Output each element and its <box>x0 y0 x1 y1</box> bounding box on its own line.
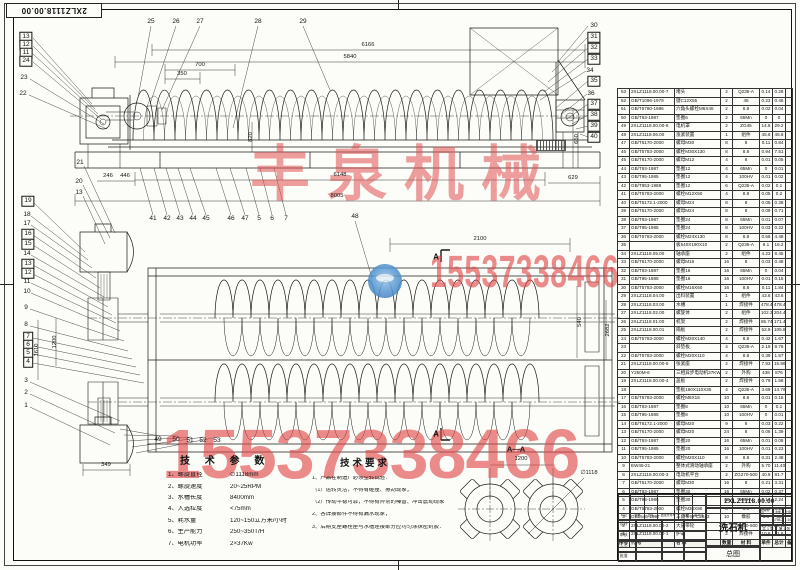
part-callout: 15 <box>21 239 34 250</box>
part-callout: 4 <box>23 357 33 368</box>
tech-param-row: 7、电机功率2×37Kw <box>160 541 335 547</box>
dimension-label: 2682 <box>606 324 612 337</box>
part-callout: 27 <box>195 19 204 26</box>
part-callout: 6 <box>269 216 275 223</box>
part-callout: 11 <box>23 279 32 286</box>
part-callout: 12 <box>21 268 34 279</box>
dimension-label: 246 <box>103 174 113 180</box>
bom-row: 292XLZ1118.04.00出料装置1组件43.643.6 <box>618 293 793 302</box>
part-callout: 44 <box>188 216 197 223</box>
sign-label: 工艺 <box>618 541 636 552</box>
part-callout: 47 <box>240 216 249 223</box>
bom-row: 20Y250M-6三相异步电动机37KW2外购438876 <box>618 369 793 378</box>
bom-row: 50GB/T93-1987垫圈6265Mn00 <box>618 114 793 123</box>
part-callout: 28 <box>253 19 262 26</box>
part-callout: 18 <box>22 212 31 219</box>
part-callout: 49 <box>153 437 162 444</box>
bom-row: 22GB/T5783-2000螺栓M20X11048.80.391.57 <box>618 352 793 361</box>
dimension-label: 8005 <box>331 194 344 200</box>
part-callout: 29 <box>298 19 307 26</box>
bom-row: 342XLZ1118.05.00轴承座2组件4.238.45 <box>618 250 793 259</box>
tech-param-row: 3、水槽长度8400mm <box>160 495 335 501</box>
bom-row: 15GB/T95-1985垫圈810100HV00.01 <box>618 412 793 421</box>
bom-row: 192XLZ1118.00.00-4盖板2焊接件0.791.58 <box>618 378 793 387</box>
part-callout: 5 <box>256 216 262 223</box>
part-callout: 13 <box>74 190 83 197</box>
bom-row: 44GB/T93-1987垫圈12465Mn00.01 <box>618 165 793 174</box>
weight-label: 重量 <box>773 508 783 516</box>
sign-label: 审核 <box>618 531 636 542</box>
bom-row: 47GB/T6170-2000螺母M30880.110.84 <box>618 140 793 149</box>
dimension-label: 1200 <box>515 457 528 463</box>
part-callout: 23 <box>19 75 28 82</box>
bom-row: 482XLZ1118.06.00涨紧装置1组件45.645.6 <box>618 131 793 140</box>
sign-label: 批准 <box>618 552 636 563</box>
part-callout: 35 <box>587 76 600 87</box>
bom-row: 45GB/T6170-2000螺母M12480.010.05 <box>618 157 793 166</box>
part-callout: 45 <box>201 216 210 223</box>
bom-row: 7GB/T6170-2000螺母M301680.213.31 <box>618 480 793 489</box>
part-callout: 31 <box>587 32 600 43</box>
bom-row: 13GB/T6170-2000螺母M202480.061.39 <box>618 429 793 438</box>
tech-param-row: 4、入选粒度<75mm <box>160 506 335 512</box>
sheet-count: 共 1 张 <box>760 525 776 535</box>
tech-requirements-block: 技术要求 1、产品在制造厂必须空转试验：（1）运转灵活，不得有碰撞、擦刮现象；（… <box>312 455 557 530</box>
section-cut-label-top: A <box>433 253 439 262</box>
part-callout: 7 <box>283 216 289 223</box>
part-callout: 38 <box>587 110 600 121</box>
part-callout: 39 <box>587 121 600 132</box>
tech-param-row: 6、生产能力250~350T/H <box>160 529 335 535</box>
bom-row: 12GB/T93-1987垫圈201665Mn0.010.08 <box>618 437 793 446</box>
bom-row: 272XLZ1118.02.00螺旋体2组件102.2204.4 <box>618 310 793 319</box>
dimension-label: 350 <box>177 72 187 78</box>
part-callout: 33 <box>587 54 600 65</box>
scale-label: 比例 <box>783 508 793 516</box>
part-callout: 46 <box>226 216 235 223</box>
part-callout: 22 <box>18 91 27 98</box>
bom-row: 18垫板160X110X354Q235-A3.6914.76 <box>618 386 793 395</box>
dimension-label: 650 <box>575 134 581 144</box>
stage-label: 阶段标记 <box>760 508 773 516</box>
bom-row: 52GB/T1096-1979键C12X552450.230.46 <box>618 97 793 106</box>
bom-row: 23斜垫板4Q235-A2.198.76 <box>618 344 793 353</box>
bom-row: 9EW45-21整体式滑动轴承座2外购5.7011.40 <box>618 463 793 472</box>
title-block-code: 2XLZ1118.00.00 <box>706 494 793 508</box>
bom-row: 10GB/T5783-2000螺栓M20X11088.80.312.48 <box>618 454 793 463</box>
bom-row: 11GB/T95-1985垫圈2016100HV0.010.23 <box>618 446 793 455</box>
section-cut-label-bottom: A <box>433 430 439 439</box>
bom-row: 37GB/T95-1985垫圈248100HV0.030.22 <box>618 225 793 234</box>
part-callout: 17 <box>22 221 31 228</box>
title-block-drawing-type: 总图 <box>706 546 760 562</box>
tech-requirement-line: 1、产品在制造厂必须空转试验： <box>312 476 557 481</box>
part-callout: 1 <box>23 403 29 410</box>
dimension-label: 6148 <box>334 173 347 179</box>
sheet-index: 第 1 张 <box>776 525 793 535</box>
bom-row: 17GB/T5783-2000螺栓M8X16108.80.010.15 <box>618 395 793 404</box>
part-callout: 25 <box>146 19 155 26</box>
part-callout: 14 <box>22 251 31 258</box>
bom-row: 252XLZ1118.00.01隔板2焊接件52.9105.8 <box>618 327 793 336</box>
part-callout: 32 <box>587 43 600 54</box>
bom-row: 492XLZ1118.00.00-6电机罩2ZG4514.629.2 <box>618 123 793 132</box>
dimension-label: 446 <box>120 174 130 180</box>
bom-row: 43GB/T95-1985垫圈124100HV0.010.02 <box>618 174 793 183</box>
part-callout: 8 <box>23 322 29 329</box>
dimension-label: ∅1118 <box>580 471 597 477</box>
tech-param-row: 2、螺旋速度20~25RPM <box>160 484 335 490</box>
bom-row: 32GB/T93-1987垫圈161665Mn00.04 <box>618 267 793 276</box>
blue-stamp-icon <box>368 264 402 298</box>
tech-params-block: 技 术 参 数 1、螺旋直径∅1118mm2、螺旋速度20~25RPM3、水槽长… <box>160 452 335 547</box>
part-callout: 41 <box>148 216 157 223</box>
bom-row: 51GB/T5780-1986六角头螺栓M6X4528.80.020.04 <box>618 106 793 115</box>
scale-value: 1:10 <box>783 516 793 525</box>
tech-requirement-line: 2、各焊接部件不得有漏水现象； <box>312 512 557 517</box>
dimension-label: 540 <box>578 317 584 327</box>
part-callout: 2 <box>23 390 29 397</box>
bom-row: 41GB/T5783-2000螺栓M12X5048.80.050.2 <box>618 191 793 200</box>
part-callout: 37 <box>587 99 600 110</box>
dimension-label: 629 <box>568 176 578 182</box>
bom-row: 30GB/T5783-2000螺栓M16X60168.80.111.84 <box>618 284 793 293</box>
part-callout: 26 <box>171 19 180 26</box>
part-callout: 16 <box>21 229 34 240</box>
tiny-note-label <box>536 140 566 151</box>
bom-row: 282XLZ1118.03.00水槽1焊接件478.4478.4 <box>618 301 793 310</box>
part-callout: 34 <box>585 68 594 75</box>
bom-row: 33GB/T6170-2000螺母M161680.030.48 <box>618 259 793 268</box>
bom-row: 31GB/T95-1985垫圈1616100HV0.010.15 <box>618 276 793 285</box>
dimension-label: 820 <box>249 132 255 142</box>
dimension-label: 6166 <box>362 43 375 49</box>
bom-table: 532XLZ1118.00.00-7堵头2Q235-A0.140.2852GB/… <box>617 88 793 548</box>
tech-requirement-line: （2）传动平稳可靠，不得有异常的噪音、冲击震动现象 <box>312 500 557 505</box>
dimension-label: 700 <box>195 63 205 69</box>
bom-row: 42GB/T853-1988垫圈126Q235-A0.020.1 <box>618 182 793 191</box>
part-callout: 19 <box>21 196 34 207</box>
part-callout: 53 <box>212 438 221 445</box>
section-aa-label: A—A <box>507 445 525 454</box>
bom-row: 36GB/T5783-2000螺栓M24X13088.80.564.48 <box>618 233 793 242</box>
bom-row: 35板540X190X102Q235-A8.116.2 <box>618 242 793 251</box>
bom-row: 38GB/T93-1987垫圈24865Mn0.010.07 <box>618 216 793 225</box>
dimension-label: 1200 <box>53 336 59 349</box>
bom-row: 14GB/T6172.1-2000螺母M20980.030.22 <box>618 420 793 429</box>
part-callout: 43 <box>175 216 184 223</box>
dimension-label: 1610 <box>35 344 41 357</box>
dimension-label: 5840 <box>344 55 357 61</box>
bom-row: 24GB/T5783-2000螺栓M20X14048.80.421.67 <box>618 335 793 344</box>
bom-row: 212XLZ1118.00.00-5张紧座2焊接件7.9315.86 <box>618 361 793 370</box>
tech-param-row: 1、螺旋直径∅1118mm <box>160 472 335 478</box>
weight-value: 1798.2 <box>773 516 783 525</box>
part-callout: 51 <box>185 438 194 445</box>
part-callout: 52 <box>198 438 207 445</box>
part-callout: 10 <box>22 289 31 296</box>
sign-label: 设计 <box>618 520 636 531</box>
part-callout: 21 <box>75 160 84 167</box>
drawing-sheet: 2XLZ1118.00.00 <box>0 0 800 570</box>
bom-row: 16GB/T93-1987垫圈81065Mn00.1 <box>618 403 793 412</box>
part-callout: 9 <box>23 305 29 312</box>
part-callout: 30 <box>589 23 598 30</box>
part-callout: 24 <box>19 56 32 67</box>
bom-row: 82XLZ1118.00.00-3电动机平台2ZG270-50040.981.7 <box>618 471 793 480</box>
dimension-label: 2100 <box>474 237 487 243</box>
part-callout: 50 <box>171 437 180 444</box>
tech-requirement-line: （1）运转灵活，不得有碰撞、擦刮现象； <box>312 488 557 493</box>
dimension-label: 349 <box>101 463 111 469</box>
bom-row: 532XLZ1118.00.00-7堵头2Q235-A0.140.28 <box>618 89 793 98</box>
part-callout: 42 <box>162 216 171 223</box>
bom-row: 39GB/T6170-2000螺母M24880.090.71 <box>618 208 793 217</box>
bom-row: 262XLZ1118.01.00机架2焊接件85.74171.48 <box>618 318 793 327</box>
part-callout: 20 <box>74 179 83 186</box>
bom-row: 46GB/T5783-2000螺栓M30X13088.80.947.51 <box>618 148 793 157</box>
part-callout: 40 <box>587 132 600 143</box>
tech-requirement-line: 3、后期支座螺栓座与水槽连接部分应均匀涂抹密封胶： <box>312 525 557 530</box>
tech-param-row: 5、耗水量120~150立方米/小时 <box>160 518 335 524</box>
part-callout: 3 <box>23 378 29 385</box>
title-block-product-name: 洗石机 <box>706 508 760 546</box>
title-block: 标记处数分区更改文件号签名年月日 设计审核工艺批准 2XLZ1118.00.00… <box>617 493 792 561</box>
part-callout: 36 <box>586 91 595 98</box>
part-callout: 48 <box>350 214 359 221</box>
bom-row: 40GB/T6172.1-2000螺母M24880.050.38 <box>618 199 793 208</box>
